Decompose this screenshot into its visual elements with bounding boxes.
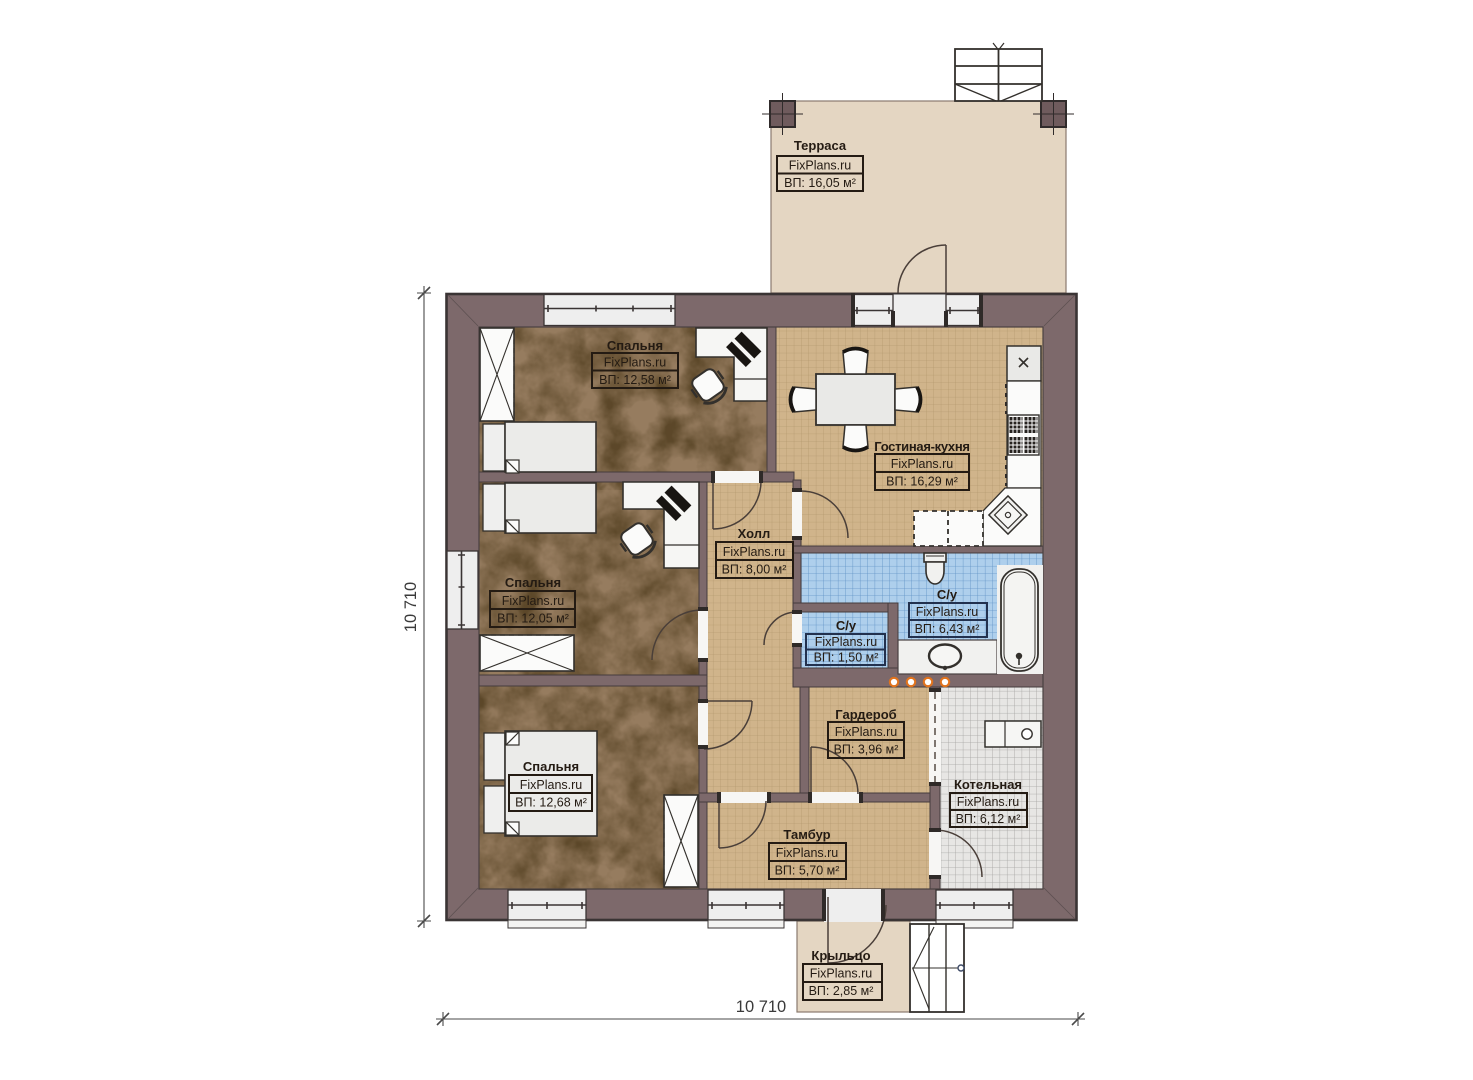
svg-text:FixPlans.ru: FixPlans.ru xyxy=(604,356,667,370)
svg-text:ВП: 12,68 м²: ВП: 12,68 м² xyxy=(515,796,587,810)
svg-text:10 710: 10 710 xyxy=(402,582,420,632)
svg-text:FixPlans.ru: FixPlans.ru xyxy=(916,605,979,619)
svg-text:FixPlans.ru: FixPlans.ru xyxy=(776,846,839,860)
svg-text:FixPlans.ru: FixPlans.ru xyxy=(520,778,583,792)
svg-text:FixPlans.ru: FixPlans.ru xyxy=(891,457,954,471)
svg-text:ВП: 5,70 м²: ВП: 5,70 м² xyxy=(775,864,840,878)
svg-text:ВП: 12,05 м²: ВП: 12,05 м² xyxy=(497,612,569,626)
svg-text:FixPlans.ru: FixPlans.ru xyxy=(815,635,878,649)
svg-text:С/у: С/у xyxy=(836,618,857,633)
svg-text:Гостиная-кухня: Гостиная-кухня xyxy=(874,439,969,454)
svg-text:ВП: 6,12 м²: ВП: 6,12 м² xyxy=(956,812,1021,826)
svg-text:Терраса: Терраса xyxy=(794,138,847,153)
svg-text:ВП: 8,00 м²: ВП: 8,00 м² xyxy=(722,563,787,577)
svg-text:ВП: 6,43 м²: ВП: 6,43 м² xyxy=(915,622,980,636)
svg-text:Спальня: Спальня xyxy=(523,759,579,774)
svg-text:Спальня: Спальня xyxy=(607,338,663,353)
svg-text:Тамбур: Тамбур xyxy=(783,827,830,842)
svg-text:FixPlans.ru: FixPlans.ru xyxy=(810,967,873,981)
svg-text:FixPlans.ru: FixPlans.ru xyxy=(957,795,1020,809)
svg-text:Котельная: Котельная xyxy=(954,777,1022,792)
svg-text:Холл: Холл xyxy=(738,526,771,541)
svg-text:FixPlans.ru: FixPlans.ru xyxy=(835,725,898,739)
svg-text:ВП: 12,58 м²: ВП: 12,58 м² xyxy=(599,373,671,387)
svg-text:FixPlans.ru: FixPlans.ru xyxy=(789,159,852,173)
svg-text:Крыльцо: Крыльцо xyxy=(811,948,870,963)
svg-text:ВП: 16,05 м²: ВП: 16,05 м² xyxy=(784,176,856,190)
svg-text:Спальня: Спальня xyxy=(505,575,561,590)
svg-text:ВП: 16,29 м²: ВП: 16,29 м² xyxy=(886,475,958,489)
svg-text:С/у: С/у xyxy=(937,587,958,602)
svg-text:ВП: 1,50 м²: ВП: 1,50 м² xyxy=(814,651,879,665)
svg-text:ВП: 2,85 м²: ВП: 2,85 м² xyxy=(809,984,874,998)
svg-text:Гардероб: Гардероб xyxy=(835,707,896,722)
svg-text:ВП: 3,96 м²: ВП: 3,96 м² xyxy=(834,743,899,757)
svg-text:FixPlans.ru: FixPlans.ru xyxy=(502,594,565,608)
svg-text:10 710: 10 710 xyxy=(736,998,786,1016)
svg-text:FixPlans.ru: FixPlans.ru xyxy=(723,545,786,559)
